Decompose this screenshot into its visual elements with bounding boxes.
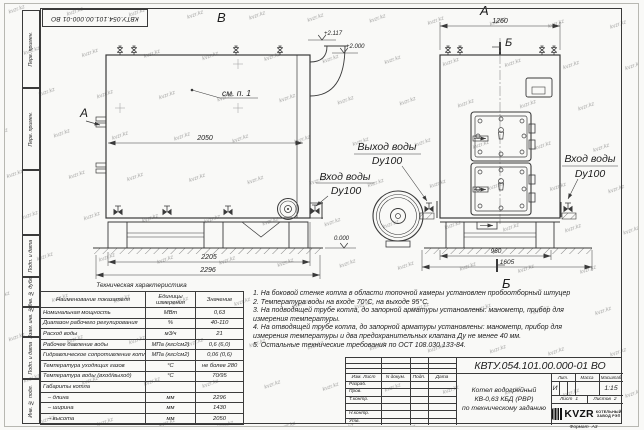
cell-name: – высота <box>41 413 146 424</box>
kvzr-logo-text: KVZR <box>564 408 593 420</box>
cell-value: 0,63 <box>196 308 244 319</box>
grid-line <box>567 381 568 395</box>
product-title-line2: КВ-0,63 КБД (РВР) <box>474 395 533 404</box>
margin-cell: Подп. и дата <box>22 337 40 379</box>
cell-value <box>196 382 244 393</box>
sheet-label: Лист <box>560 397 572 402</box>
mass-header: Масса <box>575 373 599 381</box>
doc-number-flipped: КВТУ.054.101.00.000-01 ВО <box>42 9 148 27</box>
right-view-label: А <box>479 3 489 18</box>
note-ref-label: см. п. 1 <box>222 88 251 98</box>
tb-header-izm: Изм. Лист <box>346 373 381 381</box>
table-header-row: Наименование показателя Единицы измерени… <box>41 292 244 308</box>
sheet-value: 1 <box>575 397 578 402</box>
cell-value: 40-110 <box>196 318 244 329</box>
drawing-sheet: kvzr.kz kvzr.kz В А <box>0 0 644 430</box>
outlet-line2: Dy100 <box>372 155 403 167</box>
cell-name: – ширина <box>41 403 146 414</box>
cell-units: МПа (кгс/см2) <box>146 350 196 361</box>
dim-1260-label: 1260 <box>492 18 508 25</box>
margin-cell: Перв. примен. <box>22 10 40 88</box>
col-header-units: Единицы измерения <box>146 292 196 308</box>
lit-header: Лит. <box>551 373 575 381</box>
product-title-line3: по техническому заданию <box>462 404 546 413</box>
table-row: Температура воды (вход/выход)°С70/95 <box>41 371 244 382</box>
cell-name: Диапазон рабочего регулирования <box>41 318 146 329</box>
cell-value: 2296 <box>196 392 244 403</box>
elevation-ground-label: 0.000 <box>334 236 350 242</box>
company-name-line2: ЗАВОД РЭП <box>596 414 622 418</box>
format-note: Формат А3 <box>545 424 622 430</box>
left-view-label: В <box>217 10 226 25</box>
grid-line <box>410 358 411 425</box>
table-row: – длинамм2296 <box>41 392 244 403</box>
grid-line <box>428 358 429 425</box>
margin-cell: Взам. инв. № <box>22 307 40 337</box>
scale-header: Масштаб <box>599 373 623 381</box>
tb-header-podp: Подп. <box>410 373 428 381</box>
table-row: Гидравлическое сопротивление котлаМПа (к… <box>41 350 244 361</box>
note-item: 1. На боковой стенке котла в области топ… <box>253 290 585 299</box>
grid-line <box>559 381 560 395</box>
col-header-name: Наименование показателя <box>41 292 146 308</box>
table-row: – высотамм2050 <box>41 413 244 424</box>
tech-table-title: Техническая характеристика <box>40 282 243 289</box>
sheets-label: Листов <box>593 397 610 402</box>
note-item: 4. На отводящей трубе котла, до запорной… <box>253 324 585 341</box>
table-row: Диапазон рабочего регулирования%40-110 <box>41 318 244 329</box>
sheets-value: 2 <box>614 397 617 402</box>
table-row: Рабочее давление водыМПа (кгс/см2)0,6 (6… <box>41 339 244 350</box>
section-mark-bottom-label: Б <box>502 276 511 291</box>
cell-name: Гидравлическое сопротивление котла <box>41 350 146 361</box>
tech-table-grid: Наименование показателя Единицы измерени… <box>40 291 244 425</box>
cell-name: Рабочее давление воды <box>41 339 146 350</box>
cell-units: % <box>146 318 196 329</box>
margin-cell: Перв. примен. <box>22 88 40 170</box>
tech-table: Техническая характеристика Наименование … <box>40 282 243 425</box>
cell-units: м3/ч <box>146 329 196 340</box>
margin-cell <box>22 170 40 235</box>
tb-row-nkontr: Н.контр. <box>347 410 380 417</box>
sheets-cell: Листов 2 <box>587 395 623 403</box>
cell-units: мм <box>146 403 196 414</box>
cell-name: – длина <box>41 392 146 403</box>
doc-number-flipped-text: КВТУ.054.101.00.000-01 ВО <box>51 15 139 22</box>
table-row: Габариты котла <box>41 382 244 393</box>
product-title-line1: Котел водогрейный <box>472 386 537 395</box>
tb-header-dokum: N докум. <box>381 373 410 381</box>
product-title: Котел водогрейный КВ-0,63 КБД (РВР) по т… <box>457 373 551 425</box>
tb-row-tkontr: Т.контр. <box>347 396 380 403</box>
dim-960-label: 960 <box>491 248 502 255</box>
scale-value: 1:15 <box>599 381 623 395</box>
table-row: – ширинамм1430 <box>41 403 244 414</box>
elevation-boiler-top: +2.000 <box>346 44 365 50</box>
cell-units <box>146 382 196 393</box>
cell-units: °С <box>146 360 196 371</box>
cell-value: 21 <box>196 329 244 340</box>
cell-value: 1430 <box>196 403 244 414</box>
tb-row-empty <box>347 403 380 410</box>
inlet-right-line2: Dy100 <box>575 168 606 180</box>
cell-units: МВт <box>146 308 196 319</box>
margin-label: Подп. и дата <box>28 342 34 374</box>
dim-2296-label: 2296 <box>199 267 216 274</box>
cell-value: 70/95 <box>196 371 244 382</box>
margin-cell: Подп. и дата <box>22 235 40 277</box>
cell-units: °С <box>146 371 196 382</box>
grid-line <box>346 368 456 369</box>
cell-value: 0,6 (6,0) <box>196 339 244 350</box>
section-mark-top-label: Б <box>505 37 512 49</box>
sheet-cell: Лист 1 <box>551 395 587 403</box>
margin-label: Подп. и дата <box>28 240 34 272</box>
margin-label: Взам. инв. № <box>28 306 34 338</box>
doc-number: КВТУ.054.101.00.000-01 ВО <box>457 358 623 373</box>
inlet-left-line2: Dy100 <box>331 185 362 197</box>
col-header-value: Значение <box>196 292 244 308</box>
tb-row-utv: Утв. <box>347 418 380 425</box>
margin-label: Перв. примен. <box>28 32 34 66</box>
lit-value: И <box>551 381 559 395</box>
cell-units: мм <box>146 413 196 424</box>
kvzr-logo-icon <box>552 408 562 420</box>
company-name: КОТЕЛЬНЫЙ ЗАВОД РЭП <box>596 410 622 419</box>
dim-2205-label: 2205 <box>200 254 217 261</box>
cell-name: Расход воды <box>41 329 146 340</box>
margin-label: Перв. примен. <box>28 112 34 146</box>
cell-units: МПа (кгс/см2) <box>146 339 196 350</box>
margin-label: Инв. № подл. <box>28 385 34 418</box>
table-row: Расход водым3/ч21 <box>41 329 244 340</box>
cell-units: мм <box>146 392 196 403</box>
tb-header-data: Дата <box>428 373 456 381</box>
cell-name: Габариты котла <box>41 382 146 393</box>
cell-value: 2050 <box>196 413 244 424</box>
grid-line <box>346 363 456 364</box>
elevation-flue-top: +2.117 <box>324 31 343 37</box>
cell-value: 0,06 (0,6) <box>196 350 244 361</box>
view-arrow-label: А <box>79 106 88 120</box>
cell-name: Температура уходящих газов <box>41 360 146 371</box>
note-item: 5. Остальные технические требования по О… <box>253 342 585 351</box>
company-logo: KVZR КОТЕЛЬНЫЙ ЗАВОД РЭП <box>551 403 623 425</box>
margin-cell: Инв. № дубл. <box>22 277 40 307</box>
margin-label: Инв. № дубл. <box>28 276 34 308</box>
inlet-right-line1: Вход воды <box>565 153 616 165</box>
cell-name: Температура воды (вход/выход) <box>41 371 146 382</box>
note-item: 2. Температура воды на входе 70°С, на вы… <box>253 299 585 308</box>
title-block: КВТУ.054.101.00.000-01 ВО Изм. Лист N до… <box>345 357 622 424</box>
outlet-line1: Выход воды <box>357 141 416 153</box>
format-value: А3 <box>592 425 598 430</box>
ground-line <box>424 248 592 254</box>
format-label: Формат <box>570 425 589 430</box>
dim-2050-label: 2050 <box>196 135 213 142</box>
table-row: Номинальная мощностьМВт0,63 <box>41 308 244 319</box>
inlet-left-line1: Вход воды <box>320 171 371 183</box>
cell-value: не более 280 <box>196 360 244 371</box>
tb-row-prov: Пров. <box>347 388 380 395</box>
cell-name: Номинальная мощность <box>41 308 146 319</box>
tb-row-razrab: Разраб. <box>347 381 380 388</box>
grid-line <box>381 358 382 425</box>
notes: 1. На боковой стенке котла в области топ… <box>253 290 585 350</box>
note-item: 3. На подводящей трубе котла, до запорно… <box>253 307 585 324</box>
margin-cell: Инв. № подл. <box>22 379 40 424</box>
table-row: Температура уходящих газов°Сне более 280 <box>41 360 244 371</box>
